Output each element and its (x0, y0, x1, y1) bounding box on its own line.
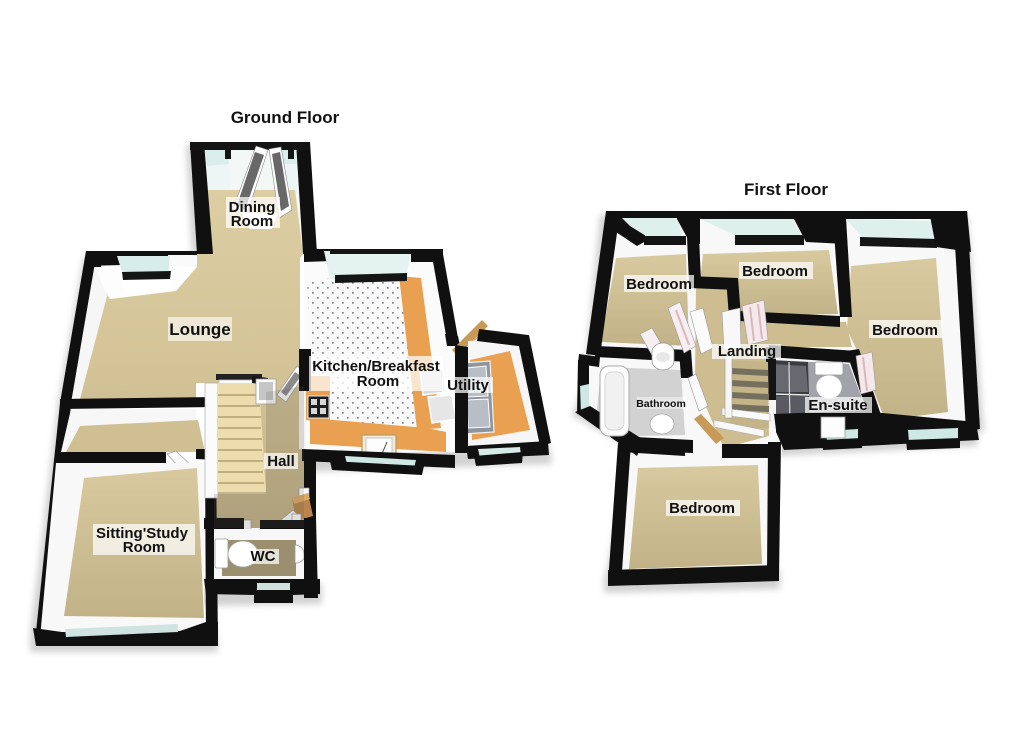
svg-text:Bedroom: Bedroom (872, 322, 938, 339)
svg-text:Ground Floor: Ground Floor (231, 108, 340, 127)
svg-text:Lounge: Lounge (169, 320, 230, 339)
svg-text:En-suite: En-suite (808, 397, 867, 414)
svg-text:Bedroom: Bedroom (626, 276, 692, 293)
svg-text:First Floor: First Floor (744, 180, 828, 199)
svg-text:WC: WC (251, 548, 276, 565)
svg-text:Room: Room (123, 539, 166, 556)
svg-text:Bathroom: Bathroom (636, 398, 686, 410)
svg-text:Bedroom: Bedroom (742, 263, 808, 280)
svg-text:Utility: Utility (447, 377, 489, 394)
svg-text:Landing: Landing (718, 343, 776, 360)
svg-text:Room: Room (357, 373, 400, 390)
svg-text:Hall: Hall (267, 453, 295, 470)
svg-text:Room: Room (231, 213, 274, 230)
svg-text:Bedroom: Bedroom (669, 500, 735, 517)
